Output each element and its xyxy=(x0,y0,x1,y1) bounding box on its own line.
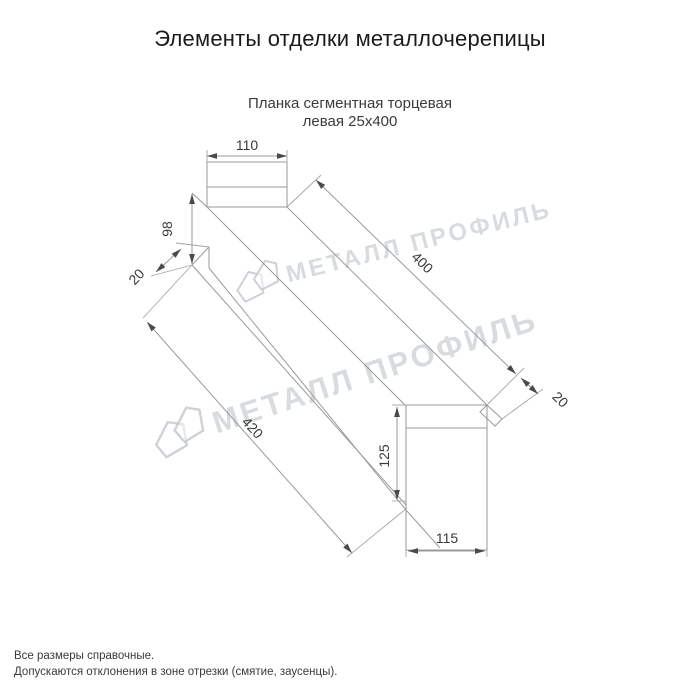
metall-profil-logo-icon xyxy=(148,404,210,459)
dim-125-label: 125 xyxy=(376,444,392,468)
watermark-text: МЕТАЛЛ ПРОФИЛЬ xyxy=(283,196,554,288)
footer-notes: Все размеры справочные. Допускаются откл… xyxy=(14,648,337,680)
dim-110-label: 110 xyxy=(236,137,259,153)
watermark-text: МЕТАЛЛ ПРОФИЛЬ xyxy=(208,302,542,440)
metall-profil-logo-icon xyxy=(232,258,283,303)
technical-drawing: МЕТАЛЛ ПРОФИЛЬ МЕТАЛЛ ПРОФИЛЬ xyxy=(0,0,700,700)
dim-20-left-label: 20 xyxy=(125,265,147,287)
footer-note-1: Все размеры справочные. xyxy=(14,648,337,664)
watermark-upper: МЕТАЛЛ ПРОФИЛЬ xyxy=(232,191,555,303)
dim-115-label: 115 xyxy=(436,530,459,546)
dim-98-label: 98 xyxy=(159,221,175,237)
footer-note-2: Допускаются отклонения в зоне отрезки (с… xyxy=(14,664,337,680)
drawing-page: Элементы отделки металлочерепицы Планка … xyxy=(0,0,700,700)
dim-20-right-label: 20 xyxy=(549,388,571,410)
